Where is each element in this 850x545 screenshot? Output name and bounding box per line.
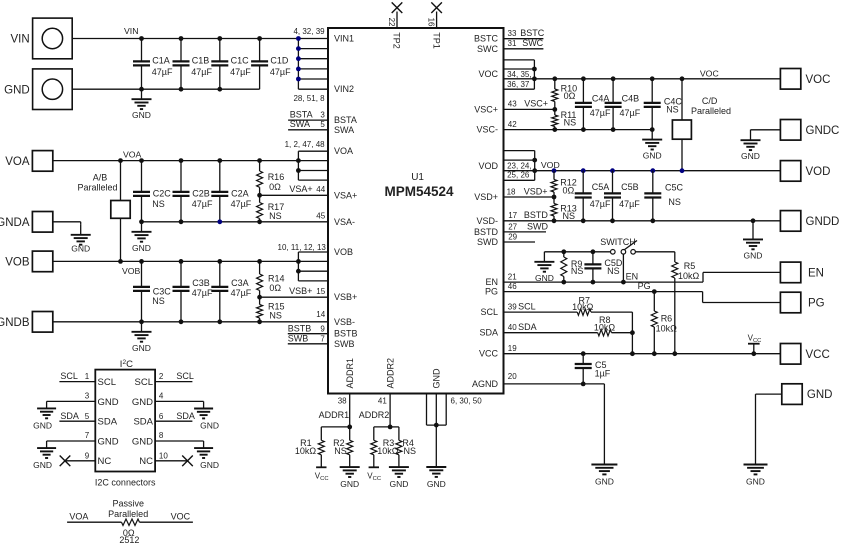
svg-text:VSB-: VSB- bbox=[334, 317, 355, 327]
svg-text:C5B: C5B bbox=[621, 182, 639, 192]
svg-text:NC: NC bbox=[139, 456, 153, 467]
svg-text:GNDD: GNDD bbox=[806, 216, 840, 228]
svg-text:C2A: C2A bbox=[231, 188, 249, 198]
svg-text:36, 37: 36, 37 bbox=[507, 80, 530, 89]
svg-text:C1B: C1B bbox=[192, 55, 210, 65]
svg-text:SDA: SDA bbox=[98, 417, 118, 428]
svg-text:47µF: 47µF bbox=[192, 288, 213, 298]
svg-text:NS: NS bbox=[152, 199, 165, 209]
svg-text:VOA: VOA bbox=[5, 156, 30, 168]
svg-text:VOC: VOC bbox=[478, 69, 498, 79]
svg-text:VSD-: VSD- bbox=[476, 216, 498, 226]
svg-text:AGND: AGND bbox=[472, 379, 499, 389]
svg-text:C/D: C/D bbox=[702, 96, 718, 106]
svg-text:BSTD: BSTD bbox=[524, 210, 549, 220]
svg-text:GND: GND bbox=[340, 479, 359, 489]
svg-text:44: 44 bbox=[316, 185, 325, 194]
svg-text:VCC: VCC bbox=[315, 471, 329, 482]
svg-text:Paralleled: Paralleled bbox=[691, 106, 731, 116]
svg-text:SWC: SWC bbox=[522, 38, 543, 48]
svg-text:NS: NS bbox=[269, 310, 282, 320]
svg-text:Paralleled: Paralleled bbox=[108, 509, 148, 519]
svg-text:VOC: VOC bbox=[171, 511, 191, 521]
svg-text:GND: GND bbox=[98, 436, 119, 447]
svg-text:38: 38 bbox=[338, 396, 347, 405]
svg-text:SWC: SWC bbox=[477, 44, 498, 54]
svg-text:C5A: C5A bbox=[592, 182, 610, 192]
svg-text:GND: GND bbox=[132, 243, 151, 253]
svg-text:VOA: VOA bbox=[123, 150, 142, 160]
svg-text:0Ω: 0Ω bbox=[269, 283, 281, 293]
svg-text:SDA: SDA bbox=[133, 417, 153, 428]
svg-text:SCL: SCL bbox=[98, 377, 116, 388]
svg-text:GND: GND bbox=[432, 368, 442, 389]
svg-text:MPM54524: MPM54524 bbox=[384, 184, 454, 199]
svg-text:10kΩ: 10kΩ bbox=[377, 446, 399, 456]
svg-text:15: 15 bbox=[316, 287, 325, 296]
svg-text:NS: NS bbox=[571, 266, 584, 276]
svg-text:GNDB: GNDB bbox=[0, 317, 30, 329]
svg-text:VOB: VOB bbox=[122, 266, 141, 276]
svg-text:C3A: C3A bbox=[231, 278, 249, 288]
svg-text:21: 21 bbox=[508, 272, 517, 281]
svg-text:R5: R5 bbox=[684, 261, 696, 271]
svg-text:22: 22 bbox=[387, 18, 396, 27]
svg-text:GND: GND bbox=[595, 477, 614, 487]
svg-text:GND: GND bbox=[132, 436, 153, 447]
svg-text:16: 16 bbox=[427, 18, 436, 27]
svg-text:VIN2: VIN2 bbox=[334, 84, 354, 94]
svg-text:34, 35,: 34, 35, bbox=[507, 70, 531, 79]
svg-text:GND: GND bbox=[33, 420, 52, 430]
svg-text:VOA: VOA bbox=[69, 511, 88, 521]
svg-text:VOC: VOC bbox=[700, 68, 719, 78]
svg-text:6: 6 bbox=[159, 412, 164, 421]
svg-text:40: 40 bbox=[508, 323, 517, 332]
svg-text:47µF: 47µF bbox=[590, 199, 611, 209]
svg-text:ADDR2: ADDR2 bbox=[386, 358, 396, 389]
svg-text:GNDA: GNDA bbox=[0, 217, 30, 229]
svg-text:9: 9 bbox=[85, 451, 90, 460]
svg-text:VCC: VCC bbox=[806, 349, 830, 361]
svg-text:14: 14 bbox=[316, 310, 325, 319]
svg-text:VSC+: VSC+ bbox=[474, 104, 498, 114]
svg-text:27: 27 bbox=[508, 222, 517, 231]
svg-text:VSD+: VSD+ bbox=[474, 192, 498, 202]
svg-text:47µF: 47µF bbox=[152, 67, 173, 77]
svg-text:NS: NS bbox=[564, 118, 577, 128]
svg-text:A/B: A/B bbox=[93, 172, 108, 182]
svg-text:C2C: C2C bbox=[153, 188, 172, 198]
svg-text:PG: PG bbox=[638, 281, 651, 291]
svg-text:BSTA: BSTA bbox=[290, 109, 313, 119]
svg-text:47µF: 47µF bbox=[620, 108, 641, 118]
svg-text:GND: GND bbox=[200, 421, 219, 431]
svg-text:VSA-: VSA- bbox=[334, 217, 355, 227]
svg-text:5: 5 bbox=[320, 120, 325, 129]
svg-text:VCC: VCC bbox=[479, 349, 499, 359]
svg-text:R6: R6 bbox=[661, 314, 673, 324]
svg-text:VOC: VOC bbox=[806, 74, 831, 86]
svg-text:GND: GND bbox=[427, 479, 446, 489]
svg-text:GND: GND bbox=[132, 343, 151, 353]
svg-text:VCC: VCC bbox=[748, 334, 762, 345]
svg-text:VOD: VOD bbox=[478, 161, 498, 171]
svg-text:C1C: C1C bbox=[231, 55, 250, 65]
svg-text:VCC: VCC bbox=[367, 471, 381, 482]
svg-text:10, 11, 12, 13: 10, 11, 12, 13 bbox=[278, 243, 327, 252]
svg-text:SWA: SWA bbox=[290, 119, 310, 129]
svg-text:TP2: TP2 bbox=[392, 32, 402, 49]
svg-text:2: 2 bbox=[159, 372, 164, 381]
svg-text:10kΩ: 10kΩ bbox=[678, 271, 700, 281]
svg-text:NS: NS bbox=[334, 446, 347, 456]
svg-text:47µF: 47µF bbox=[590, 108, 611, 118]
svg-text:SDA: SDA bbox=[479, 328, 498, 338]
svg-text:39: 39 bbox=[508, 302, 517, 311]
svg-text:SDA: SDA bbox=[176, 411, 195, 421]
svg-text:GND: GND bbox=[4, 84, 30, 96]
svg-text:47µF: 47µF bbox=[191, 67, 212, 77]
svg-text:R14: R14 bbox=[268, 274, 285, 284]
svg-text:5: 5 bbox=[85, 412, 90, 421]
svg-text:NS: NS bbox=[269, 211, 282, 221]
svg-text:GND: GND bbox=[71, 243, 90, 253]
svg-text:43: 43 bbox=[508, 100, 517, 109]
svg-text:GND: GND bbox=[389, 479, 408, 489]
svg-text:29: 29 bbox=[508, 232, 517, 241]
svg-text:2512: 2512 bbox=[119, 535, 139, 545]
svg-text:SCL: SCL bbox=[60, 371, 78, 381]
svg-text:SWD: SWD bbox=[477, 237, 498, 247]
svg-text:SWA: SWA bbox=[334, 125, 354, 135]
svg-text:I2C connectors: I2C connectors bbox=[95, 478, 156, 488]
svg-text:10: 10 bbox=[159, 451, 168, 460]
svg-text:33: 33 bbox=[508, 29, 517, 38]
svg-text:0Ω: 0Ω bbox=[269, 182, 281, 192]
svg-text:EN: EN bbox=[485, 277, 498, 287]
svg-text:9: 9 bbox=[320, 324, 325, 333]
svg-text:ADDR1: ADDR1 bbox=[319, 410, 350, 420]
svg-text:25, 26: 25, 26 bbox=[507, 171, 530, 180]
svg-text:47µF: 47µF bbox=[619, 199, 640, 209]
svg-text:41: 41 bbox=[378, 396, 387, 405]
svg-text:PG: PG bbox=[808, 298, 825, 310]
svg-text:VSA+: VSA+ bbox=[334, 190, 357, 200]
svg-text:10kΩ: 10kΩ bbox=[572, 302, 594, 312]
svg-text:45: 45 bbox=[316, 211, 325, 220]
svg-text:SDA: SDA bbox=[60, 411, 79, 421]
svg-text:VOD: VOD bbox=[541, 160, 560, 170]
svg-text:47µF: 47µF bbox=[231, 288, 252, 298]
svg-text:C4B: C4B bbox=[622, 93, 640, 103]
svg-text:GND: GND bbox=[807, 389, 833, 401]
svg-text:NC: NC bbox=[98, 456, 112, 467]
svg-text:47µF: 47µF bbox=[231, 199, 252, 209]
svg-text:GND: GND bbox=[132, 110, 151, 120]
svg-text:VSC-: VSC- bbox=[476, 125, 498, 135]
svg-text:C2B: C2B bbox=[192, 188, 210, 198]
svg-text:GND: GND bbox=[132, 397, 153, 408]
svg-text:VSB+: VSB+ bbox=[334, 292, 357, 302]
svg-text:GND: GND bbox=[98, 397, 119, 408]
svg-text:TP1: TP1 bbox=[431, 32, 441, 49]
svg-text:4, 32, 39: 4, 32, 39 bbox=[293, 27, 325, 36]
svg-text:BSTC: BSTC bbox=[474, 34, 499, 44]
svg-text:VSD+: VSD+ bbox=[524, 186, 548, 196]
svg-text:47µF: 47µF bbox=[230, 67, 251, 77]
svg-text:VSA+: VSA+ bbox=[289, 184, 312, 194]
svg-text:NS: NS bbox=[152, 296, 165, 306]
svg-text:8: 8 bbox=[159, 431, 164, 440]
svg-text:C3C: C3C bbox=[153, 286, 172, 296]
svg-text:GND: GND bbox=[535, 273, 554, 283]
svg-text:VOB: VOB bbox=[5, 256, 30, 268]
svg-text:BSTC: BSTC bbox=[520, 28, 545, 38]
svg-text:GND: GND bbox=[741, 151, 760, 161]
svg-text:SDA: SDA bbox=[518, 322, 537, 332]
svg-text:ADDR1: ADDR1 bbox=[345, 358, 355, 389]
svg-text:NS: NS bbox=[607, 266, 620, 276]
svg-text:U1: U1 bbox=[411, 172, 424, 183]
svg-text:GND: GND bbox=[744, 250, 763, 260]
svg-text:VIN: VIN bbox=[124, 26, 138, 36]
svg-text:EN: EN bbox=[626, 272, 639, 282]
svg-text:0Ω: 0Ω bbox=[564, 91, 576, 101]
svg-text:VIN: VIN bbox=[11, 34, 30, 46]
svg-text:47µF: 47µF bbox=[192, 199, 213, 209]
svg-text:PG: PG bbox=[485, 287, 498, 297]
svg-text:3: 3 bbox=[320, 110, 325, 119]
svg-text:0Ω: 0Ω bbox=[563, 185, 575, 195]
svg-text:Paralleled: Paralleled bbox=[77, 182, 117, 192]
svg-text:31: 31 bbox=[508, 39, 517, 48]
svg-text:BSTA: BSTA bbox=[334, 115, 357, 125]
svg-text:SCL: SCL bbox=[480, 307, 498, 317]
svg-text:C5C: C5C bbox=[665, 183, 684, 193]
svg-text:C3B: C3B bbox=[192, 278, 210, 288]
svg-text:SCL: SCL bbox=[135, 377, 153, 388]
svg-text:VIN1: VIN1 bbox=[334, 34, 354, 44]
svg-text:23, 24,: 23, 24, bbox=[507, 162, 531, 171]
svg-text:3: 3 bbox=[85, 392, 90, 401]
svg-text:GNDC: GNDC bbox=[806, 125, 840, 137]
svg-text:BSTD: BSTD bbox=[474, 227, 499, 237]
svg-text:VSB+: VSB+ bbox=[289, 286, 312, 296]
svg-text:18: 18 bbox=[507, 187, 516, 196]
svg-text:R16: R16 bbox=[268, 172, 285, 182]
svg-text:1µF: 1µF bbox=[595, 369, 611, 379]
svg-text:NS: NS bbox=[666, 105, 679, 115]
svg-text:I2C: I2C bbox=[120, 359, 133, 370]
svg-text:1: 1 bbox=[85, 372, 90, 381]
svg-text:7: 7 bbox=[320, 335, 325, 344]
svg-text:SWB: SWB bbox=[288, 334, 309, 344]
svg-text:4: 4 bbox=[159, 392, 164, 401]
svg-text:VSC+: VSC+ bbox=[524, 99, 548, 109]
svg-text:ADDR2: ADDR2 bbox=[359, 410, 390, 420]
svg-text:GND: GND bbox=[33, 460, 52, 470]
svg-text:C1A: C1A bbox=[152, 55, 170, 65]
svg-text:NS: NS bbox=[668, 197, 681, 207]
svg-text:10kΩ: 10kΩ bbox=[656, 324, 678, 334]
svg-text:EN: EN bbox=[808, 267, 824, 279]
svg-text:10kΩ: 10kΩ bbox=[295, 446, 317, 456]
svg-text:6, 30, 50: 6, 30, 50 bbox=[451, 396, 483, 405]
svg-text:C1D: C1D bbox=[270, 55, 289, 65]
svg-text:17: 17 bbox=[508, 211, 517, 220]
svg-text:28, 51, 8: 28, 51, 8 bbox=[293, 94, 325, 103]
svg-text:GND: GND bbox=[643, 151, 662, 161]
svg-text:NS: NS bbox=[404, 446, 417, 456]
svg-text:BSTB: BSTB bbox=[334, 329, 358, 339]
svg-text:GND: GND bbox=[746, 477, 765, 487]
svg-text:SWD: SWD bbox=[527, 221, 548, 231]
svg-text:SCL: SCL bbox=[518, 301, 536, 311]
svg-text:10kΩ: 10kΩ bbox=[594, 323, 616, 333]
svg-text:42: 42 bbox=[508, 120, 517, 129]
svg-text:VOA: VOA bbox=[334, 146, 353, 156]
svg-text:1, 2, 47, 48: 1, 2, 47, 48 bbox=[285, 140, 326, 149]
svg-text:Passive: Passive bbox=[112, 499, 144, 509]
svg-text:BSTB: BSTB bbox=[288, 323, 312, 333]
svg-text:VOB: VOB bbox=[334, 247, 353, 257]
svg-text:20: 20 bbox=[508, 372, 517, 381]
svg-text:NS: NS bbox=[563, 211, 576, 221]
svg-text:47µF: 47µF bbox=[270, 67, 291, 77]
svg-text:7: 7 bbox=[85, 431, 90, 440]
svg-text:SWB: SWB bbox=[334, 339, 355, 349]
svg-text:SCL: SCL bbox=[176, 371, 194, 381]
svg-text:19: 19 bbox=[508, 344, 517, 353]
svg-text:VOD: VOD bbox=[806, 166, 831, 178]
svg-text:GND: GND bbox=[200, 460, 219, 470]
svg-text:46: 46 bbox=[508, 282, 517, 291]
